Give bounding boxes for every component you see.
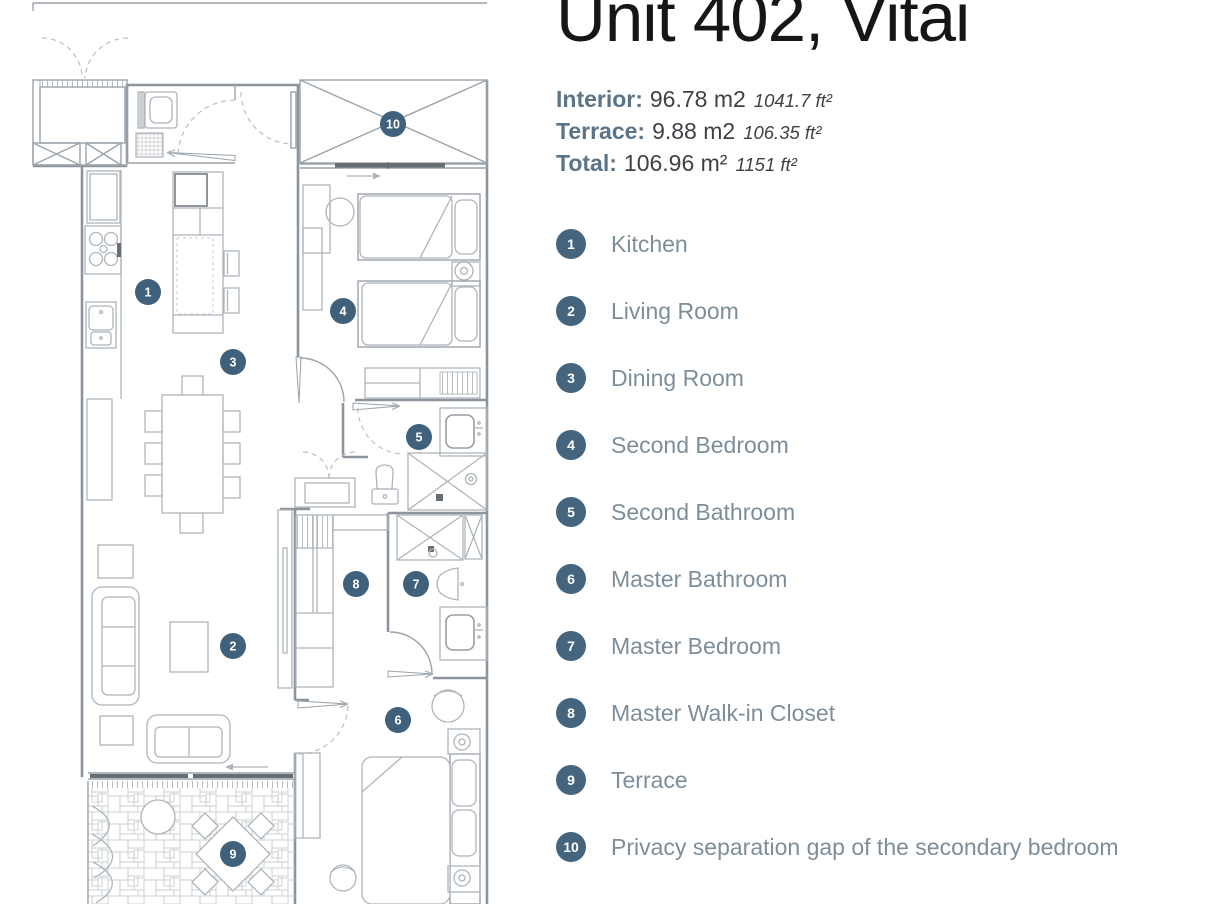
legend-item-terrace: 9 Terrace (556, 765, 1196, 795)
plan-marker-3: 3 (220, 349, 246, 375)
legend-label: Kitchen (611, 231, 688, 258)
legend-item-privacy-gap: 10 Privacy separation gap of the seconda… (556, 832, 1196, 862)
legend-badge: 2 (556, 296, 586, 326)
legend-item-kitchen: 1 Kitchen (556, 229, 1196, 259)
legend-item-master-bedroom: 7 Master Bedroom (556, 631, 1196, 661)
legend-label: Second Bedroom (611, 432, 789, 459)
second-bathroom (372, 408, 487, 510)
svg-text:8: 8 (353, 578, 360, 592)
svg-text:3: 3 (230, 356, 237, 370)
plan-marker-7: 7 (403, 571, 429, 597)
master-bathroom (388, 515, 487, 678)
area-row-interior: Interior:96.78 m21041.7 ft² (556, 83, 1196, 115)
legend-label: Master Walk-in Closet (611, 700, 835, 727)
legend-item-dining-room: 3 Dining Room (556, 363, 1196, 393)
legend-badge: 7 (556, 631, 586, 661)
legend-badge: 6 (556, 564, 586, 594)
legend-label: Second Bathroom (611, 499, 795, 526)
plan-marker-6: 6 (385, 707, 411, 733)
terrace-imperial: 106.35 ft² (743, 122, 821, 143)
total-imperial: 1151 ft² (735, 154, 796, 175)
legend-badge: 8 (556, 698, 586, 728)
area-summary: Interior:96.78 m21041.7 ft² Terrace:9.88… (556, 83, 1196, 179)
plan-marker-5: 5 (406, 424, 432, 450)
page-title: Unit 402, Vitai (556, 0, 1196, 52)
legend-label: Privacy separation gap of the secondary … (611, 834, 1119, 861)
svg-text:1: 1 (145, 286, 152, 300)
living-room (92, 510, 292, 763)
terrace (88, 764, 295, 904)
legend-label: Living Room (611, 298, 739, 325)
interior-metric: 96.78 m2 (650, 86, 746, 112)
area-row-total: Total:106.96 m²1151 ft² (556, 147, 1196, 179)
legend-label: Master Bedroom (611, 633, 781, 660)
plan-marker-9: 9 (220, 841, 246, 867)
area-row-terrace: Terrace:9.88 m2106.35 ft² (556, 115, 1196, 147)
hallway (295, 403, 404, 507)
svg-text:6: 6 (395, 714, 402, 728)
plan-marker-4: 4 (330, 298, 356, 324)
svg-text:4: 4 (340, 305, 347, 319)
legend-label: Terrace (611, 767, 688, 794)
info-panel: Unit 402, Vitai Interior:96.78 m21041.7 … (556, 0, 1196, 899)
legend-badge: 9 (556, 765, 586, 795)
plan-marker-10: 10 (380, 111, 406, 137)
interior-imperial: 1041.7 ft² (754, 90, 832, 111)
legend-badge: 3 (556, 363, 586, 393)
total-metric: 106.96 m² (624, 150, 728, 176)
second-bedroom (296, 185, 480, 403)
svg-text:10: 10 (386, 118, 400, 132)
walk-in-closet (296, 515, 388, 754)
legend-badge: 5 (556, 497, 586, 527)
legend-badge: 1 (556, 229, 586, 259)
legend-item-second-bathroom: 5 Second Bathroom (556, 497, 1196, 527)
room-legend: 1 Kitchen 2 Living Room 3 Dining Room 4 … (556, 229, 1196, 862)
legend-badge: 10 (556, 832, 586, 862)
svg-text:5: 5 (416, 431, 423, 445)
plan-marker-1: 1 (135, 279, 161, 305)
legend-item-walk-in-closet: 8 Master Walk-in Closet (556, 698, 1196, 728)
entry-core (33, 38, 128, 165)
svg-text:2: 2 (230, 640, 237, 654)
laundry-room (136, 92, 235, 161)
terrace-metric: 9.88 m2 (652, 118, 735, 144)
svg-text:7: 7 (413, 578, 420, 592)
total-label: Total: (556, 150, 617, 176)
dining-area (145, 376, 240, 533)
legend-item-second-bedroom: 4 Second Bedroom (556, 430, 1196, 460)
legend-item-living-room: 2 Living Room (556, 296, 1196, 326)
plan-marker-2: 2 (220, 633, 246, 659)
svg-text:9: 9 (230, 848, 237, 862)
plan-marker-8: 8 (343, 571, 369, 597)
legend-label: Master Bathroom (611, 566, 787, 593)
terrace-label: Terrace: (556, 118, 645, 144)
legend-item-master-bathroom: 6 Master Bathroom (556, 564, 1196, 594)
entry-door (241, 92, 296, 148)
interior-label: Interior: (556, 86, 643, 112)
floor-plan: 12345678910 (0, 0, 540, 904)
floor-plan-drawing: 12345678910 (0, 0, 540, 904)
legend-label: Dining Room (611, 365, 744, 392)
legend-badge: 4 (556, 430, 586, 460)
